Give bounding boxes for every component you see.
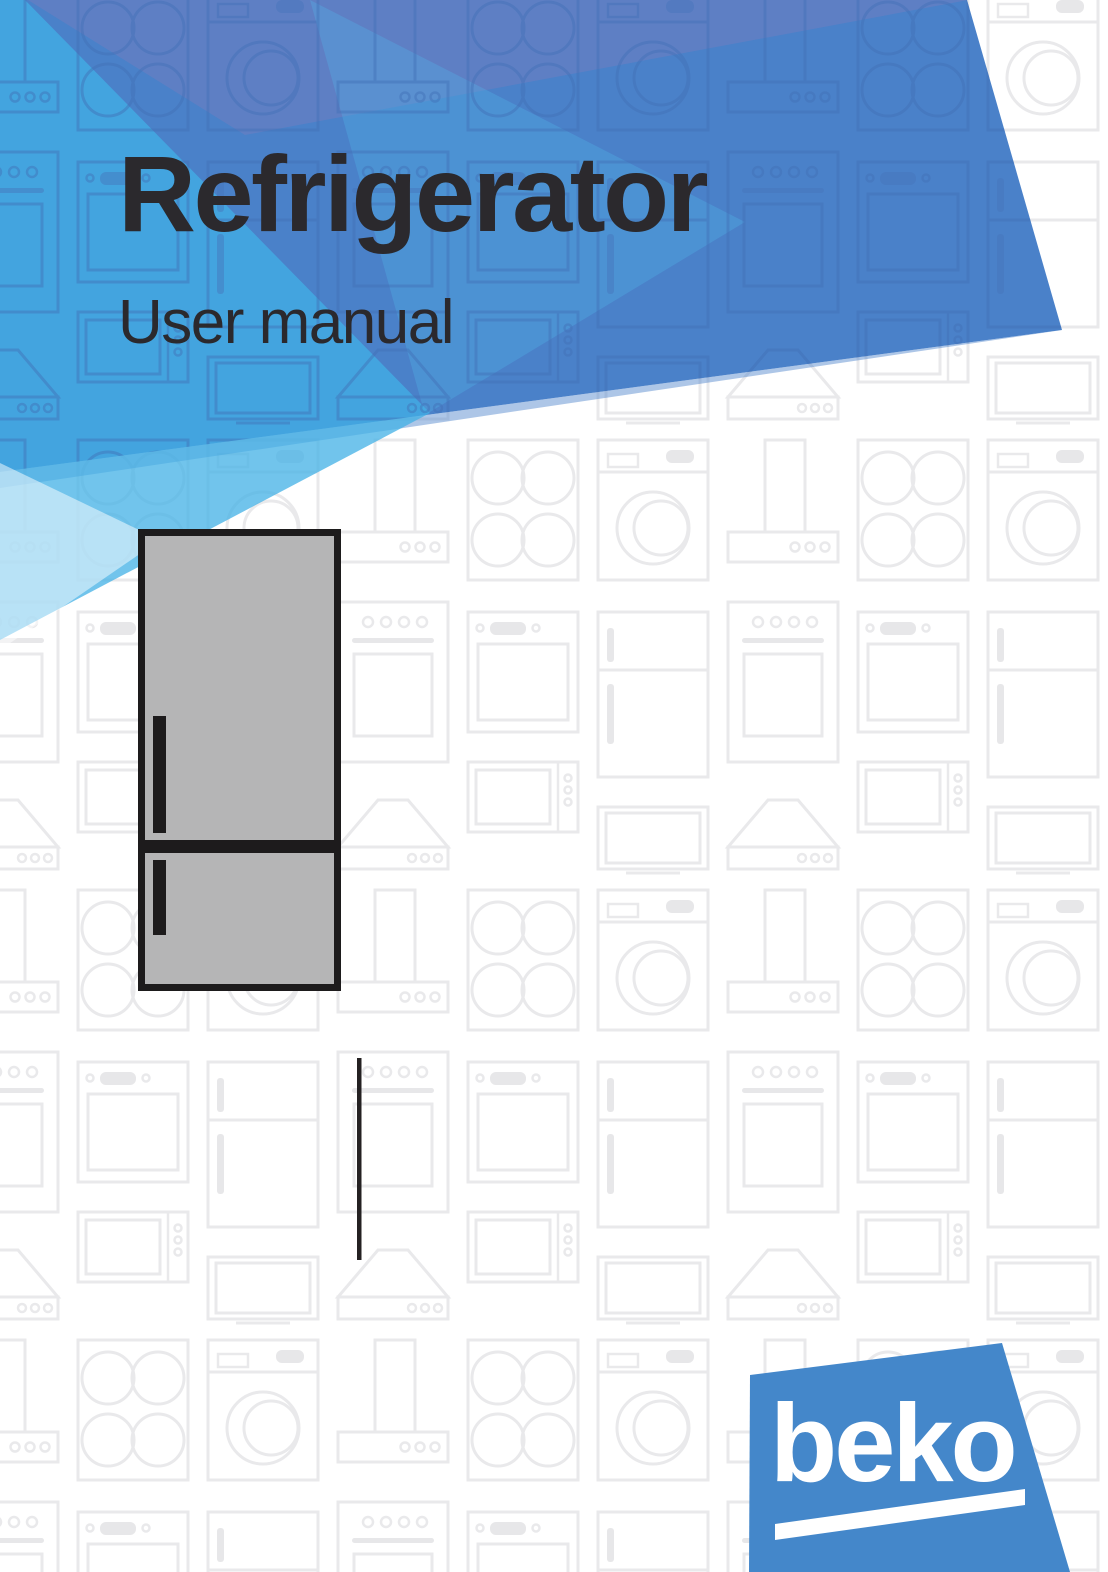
- refrigerator-illustration: [138, 529, 341, 991]
- fridge-lower-handle: [153, 860, 166, 935]
- beko-wordmark: beko: [770, 1382, 1015, 1505]
- page-title: Refrigerator: [118, 140, 706, 248]
- fridge-upper-handle: [153, 716, 166, 833]
- vertical-divider-line: [357, 1058, 362, 1260]
- page-subtitle: User manual: [118, 292, 706, 354]
- title-block: Refrigerator User manual: [118, 140, 706, 354]
- fridge-upper-door: [145, 536, 334, 840]
- manual-cover-page: beko Refrigerator User manual: [0, 0, 1108, 1572]
- fridge-lower-door: [145, 853, 334, 984]
